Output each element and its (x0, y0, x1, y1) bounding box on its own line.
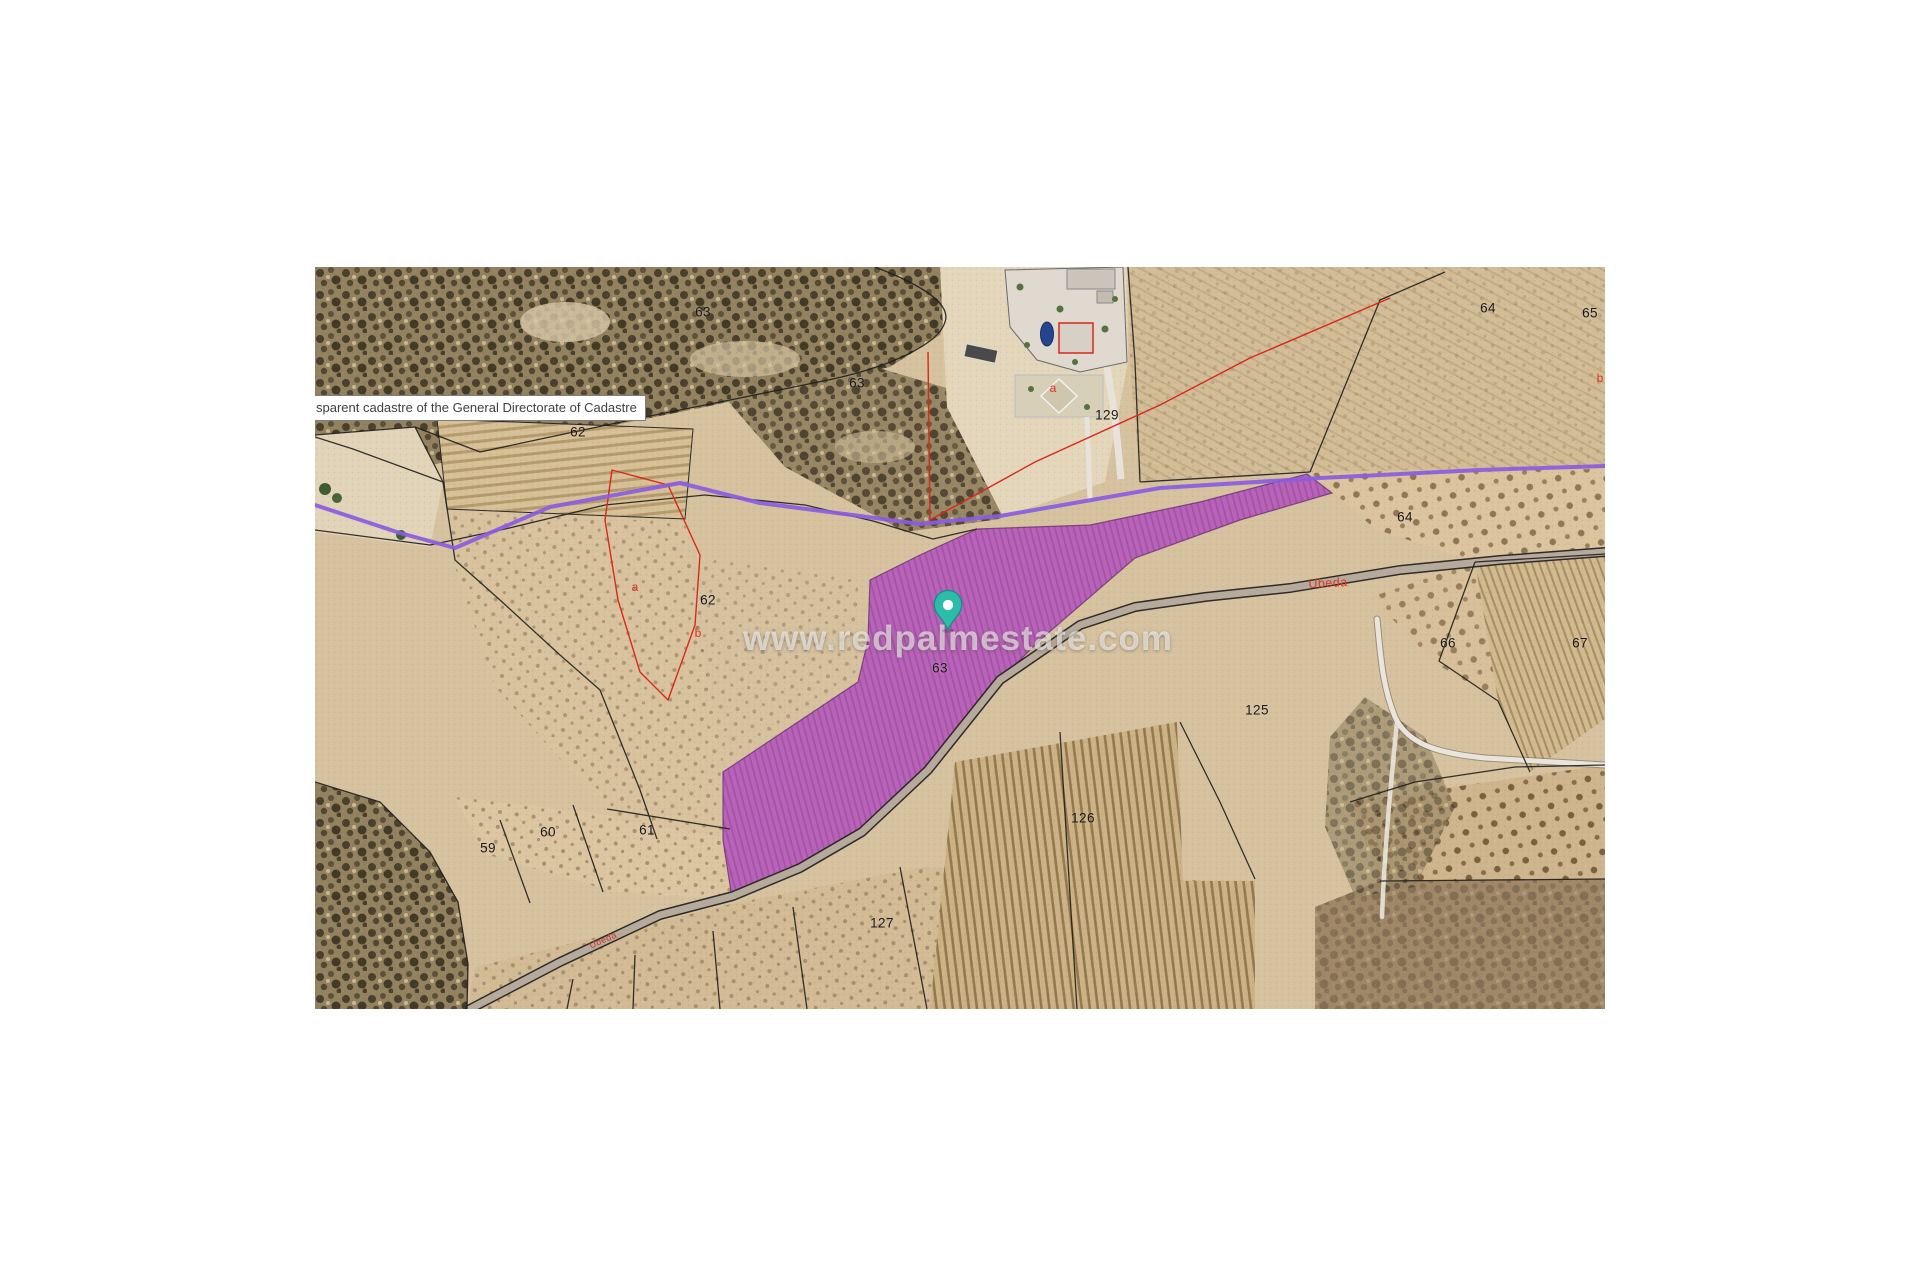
road-name-label: Ubeda (1308, 575, 1348, 591)
red-annotation: a (1050, 381, 1057, 395)
red-annotation: b (1597, 371, 1604, 385)
parcel-number: 62 (700, 593, 716, 608)
parcel-number: 125 (1245, 703, 1269, 718)
parcel-number: 66 (1440, 636, 1456, 651)
swimming-pool (1041, 322, 1054, 346)
attribution-label: sparent cadastre of the General Director… (315, 395, 646, 421)
red-annotation: a (632, 580, 639, 594)
parcel-number: 129 (1095, 408, 1119, 423)
parcel-number: 59 (480, 841, 496, 856)
parcel-number: 63 (695, 305, 711, 320)
parcel-number: 65 (1582, 306, 1598, 321)
parcel-number: 127 (870, 916, 894, 931)
location-pin-marker[interactable] (929, 587, 967, 635)
satellite-map-canvas[interactable]: sparent cadastre of the General Director… (315, 267, 1605, 1009)
parcel-number: 64 (1397, 510, 1413, 525)
parcel-number: 126 (1071, 811, 1095, 826)
parcel-number: 63 (932, 661, 948, 676)
location-pin-icon (929, 587, 967, 635)
parcel-number: 61 (639, 823, 655, 838)
parcel-number: 67 (1572, 636, 1588, 651)
parcel-number: 63 (849, 376, 865, 391)
parcel-number: 64 (1480, 301, 1496, 316)
parcel-number: 60 (540, 825, 556, 840)
parcel-number: 62 (570, 425, 586, 440)
page: sparent cadastre of the General Director… (0, 0, 1920, 1280)
red-outlined-building (1059, 323, 1093, 353)
building (1067, 269, 1115, 289)
